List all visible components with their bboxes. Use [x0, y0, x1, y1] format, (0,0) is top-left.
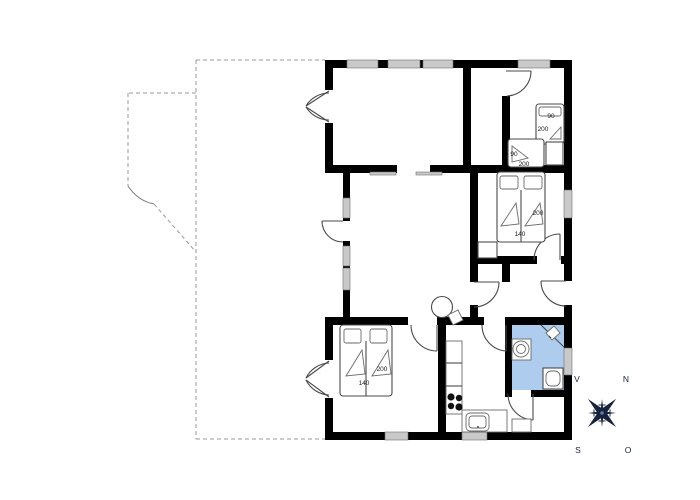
pillow: [370, 329, 387, 343]
window: [564, 348, 572, 375]
window: [343, 268, 350, 290]
door-sw-bedroom: [411, 325, 437, 351]
text-label: O: [625, 445, 632, 455]
terrace-outline: [128, 60, 325, 439]
door-hall-west: [474, 282, 499, 307]
floor-plan-page: VNSO 9020090200200140200140: [0, 0, 700, 500]
window: [343, 198, 350, 218]
window: [518, 60, 550, 68]
window: [462, 432, 487, 440]
window: [423, 60, 453, 68]
pillow: [500, 176, 518, 189]
text-label: N: [623, 374, 629, 384]
floor-plan-drawing: VNSO 9020090200200140200140: [0, 0, 700, 500]
opening-jamb: [370, 172, 396, 175]
door-kitchen: [482, 325, 506, 351]
compass-rose: VNSO: [574, 374, 632, 455]
text-label: 140: [515, 231, 526, 238]
text-label: 200: [377, 366, 388, 373]
opening-jamb: [416, 172, 442, 175]
text-label: 90: [547, 113, 555, 120]
door-bathroom: [508, 394, 533, 420]
window: [347, 60, 378, 68]
text-label: 200: [533, 210, 544, 217]
window: [564, 190, 572, 218]
terrace-curve: [128, 186, 154, 204]
bedside-table: [546, 142, 563, 165]
door-top-right-bedroom: [506, 71, 531, 96]
text-label: V: [574, 374, 580, 384]
bedside-table: [478, 242, 497, 258]
kitchen-counter-left: [446, 341, 462, 414]
text-label: 90: [510, 151, 518, 158]
door-entrance-east: [541, 281, 566, 306]
bathroom: [512, 325, 564, 390]
window: [343, 246, 350, 266]
entrance-mat: [512, 419, 531, 432]
text-label: 140: [359, 380, 370, 387]
door-left-middle: [322, 221, 343, 242]
text-label: S: [575, 445, 581, 455]
window: [388, 60, 420, 68]
text-label: 200: [519, 161, 530, 168]
window: [385, 432, 408, 440]
pillow: [524, 176, 542, 189]
text-label: 200: [538, 126, 549, 133]
pillow: [344, 329, 361, 343]
